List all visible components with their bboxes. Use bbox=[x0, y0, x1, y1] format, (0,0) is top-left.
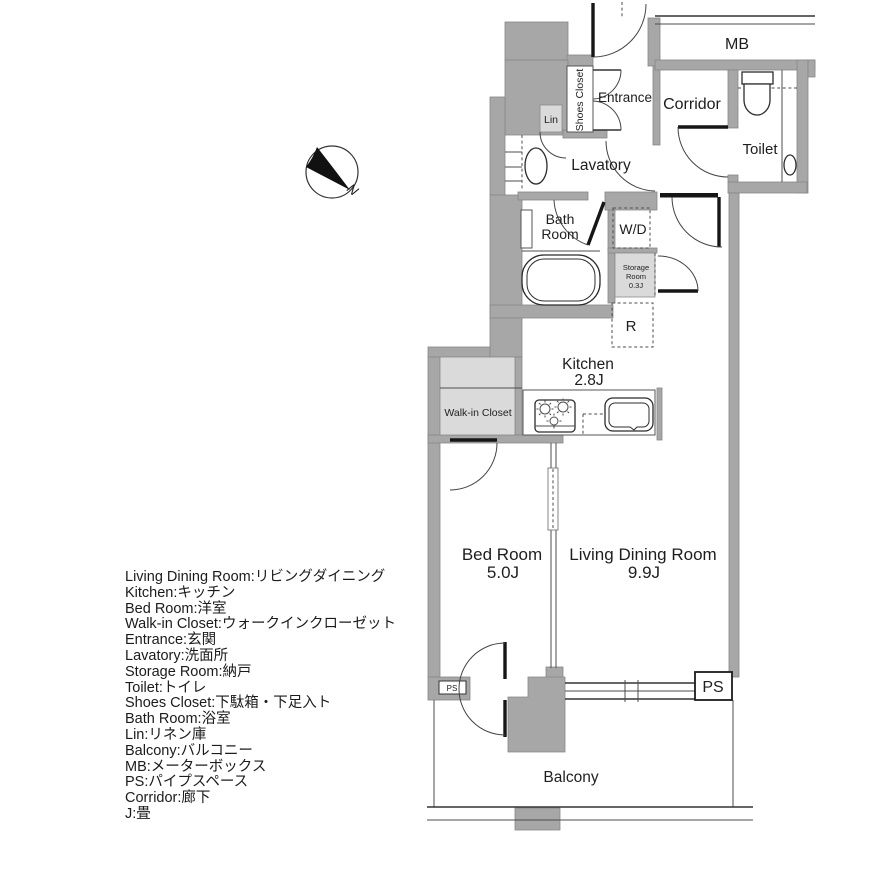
toilet-hand-basin bbox=[784, 155, 796, 175]
label-bed-room: Bed Room bbox=[462, 545, 542, 564]
legend-line: Walk-in Closet:ウォークインクローゼット bbox=[125, 617, 396, 633]
bathtub-inner bbox=[527, 259, 595, 301]
legend-line: Storage Room:納戸 bbox=[125, 665, 396, 681]
legend-line: Corridor:廊下 bbox=[125, 791, 396, 807]
label-bath-2: Room bbox=[541, 226, 578, 242]
toilet-bowl bbox=[744, 84, 770, 115]
balcony-and-windows bbox=[427, 680, 753, 820]
wash-basin bbox=[525, 148, 547, 184]
label-living-dining: Living Dining Room bbox=[569, 545, 716, 564]
label-mb: MB bbox=[725, 36, 749, 53]
label-bed-room-size: 5.0J bbox=[487, 563, 519, 582]
label-lavatory: Lavatory bbox=[571, 157, 631, 174]
north-compass: N bbox=[306, 146, 361, 199]
label-wd: W/D bbox=[619, 221, 646, 237]
label-walk-in-closet: Walk-in Closet bbox=[444, 407, 511, 419]
label-lin: Lin bbox=[544, 114, 558, 126]
legend-line: Kitchen:キッチン bbox=[125, 586, 396, 602]
label-storage-2: Room bbox=[626, 272, 646, 281]
label-ps-small: PS bbox=[447, 684, 458, 693]
legend-line: PS:パイプスペース bbox=[125, 775, 396, 791]
floor-plan-page: N MB Entrance Corridor Toilet Shoes Clos… bbox=[0, 0, 872, 872]
legend-line: Entrance:玄関 bbox=[125, 633, 396, 649]
legend: Living Dining Room:リビングダイニング Kitchen:キッチ… bbox=[125, 570, 396, 823]
label-storage-1: Storage bbox=[623, 263, 649, 272]
corridor-wall-line bbox=[660, 193, 718, 198]
legend-line: Toilet:トイレ bbox=[125, 681, 396, 697]
label-refrigerator: R bbox=[626, 318, 637, 335]
legend-line: MB:メーターボックス bbox=[125, 760, 396, 776]
label-balcony: Balcony bbox=[543, 769, 598, 786]
legend-line: Lavatory:洗面所 bbox=[125, 649, 396, 665]
toilet-fixtures bbox=[738, 70, 797, 182]
bedroom-partition bbox=[548, 443, 558, 668]
pipe-spaces bbox=[439, 672, 732, 700]
legend-line: Bath Room:浴室 bbox=[125, 712, 396, 728]
label-corridor: Corridor bbox=[663, 96, 721, 113]
walk-in-closet-box bbox=[440, 357, 515, 435]
bath-counter bbox=[521, 210, 532, 248]
label-shoes-closet: Shoes Closet bbox=[574, 69, 586, 132]
legend-line: Shoes Closet:下駄箱・下足入ト bbox=[125, 696, 396, 712]
kitchen-sink-inner bbox=[609, 403, 649, 430]
kitchen-counter bbox=[523, 390, 655, 435]
bath-door-leaf bbox=[588, 202, 604, 245]
legend-line: J:畳 bbox=[125, 807, 396, 823]
stove bbox=[535, 400, 575, 432]
lavatory-fixtures bbox=[505, 135, 547, 190]
label-ps-large: PS bbox=[702, 679, 723, 696]
legend-line: Living Dining Room:リビングダイニング bbox=[125, 570, 396, 586]
legend-line: Lin:リネン庫 bbox=[125, 728, 396, 744]
balcony-bottom-block bbox=[515, 808, 560, 830]
label-kitchen: Kitchen bbox=[562, 356, 614, 373]
label-bath-1: Bath bbox=[546, 211, 575, 227]
label-entrance: Entrance bbox=[598, 90, 652, 105]
balcony-pillar bbox=[508, 677, 565, 752]
toilet-tank bbox=[742, 72, 773, 84]
legend-line: Balcony:バルコニー bbox=[125, 744, 396, 760]
label-storage-3: 0.3J bbox=[629, 281, 643, 290]
label-living-dining-size: 9.9J bbox=[628, 563, 660, 582]
label-kitchen-size: 2.8J bbox=[574, 372, 603, 389]
label-toilet: Toilet bbox=[742, 141, 778, 158]
